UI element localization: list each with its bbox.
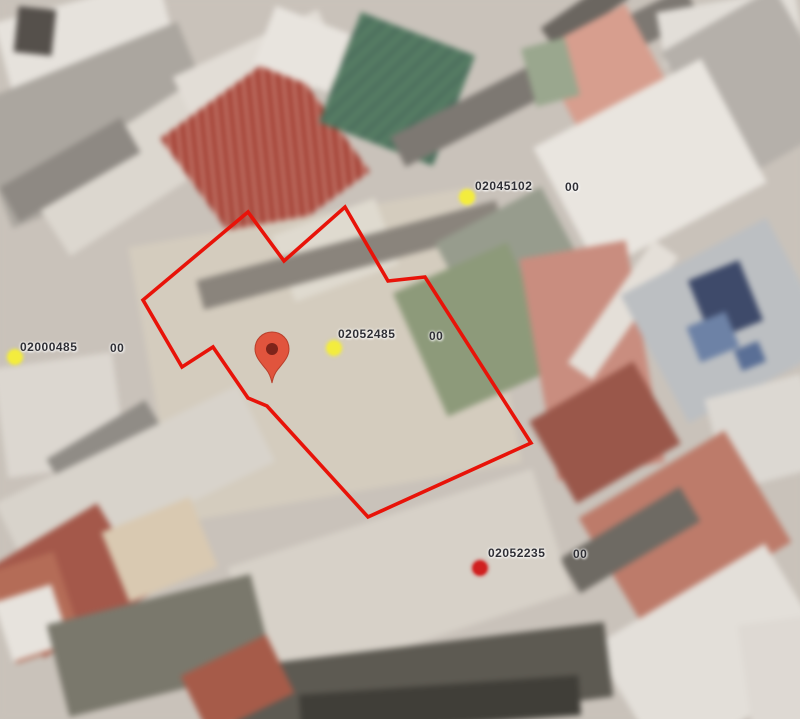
parcel-number: 02052485 xyxy=(338,327,395,341)
parcel-suffix: 00 xyxy=(565,180,579,194)
parcel-number: 02000485 xyxy=(20,340,77,354)
location-pin-icon[interactable] xyxy=(252,330,292,391)
shadow-shape xyxy=(14,6,57,56)
pin-body xyxy=(255,332,289,383)
parcel-dot-icon[interactable] xyxy=(473,561,487,575)
parcel-suffix: 00 xyxy=(573,547,587,561)
parcel-number: 02045102 xyxy=(475,179,532,193)
parcel-number: 02052235 xyxy=(488,546,545,560)
map-canvas[interactable]: 02045102 00 02000485 00 02052485 00 0205… xyxy=(0,0,800,719)
satellite-imagery xyxy=(0,0,800,719)
parcel-dot-icon[interactable] xyxy=(327,341,341,355)
parcel-suffix: 00 xyxy=(110,341,124,355)
pin-inner-dot xyxy=(266,343,278,355)
parcel-suffix: 00 xyxy=(429,329,443,343)
parcel-dot-icon[interactable] xyxy=(460,190,474,204)
